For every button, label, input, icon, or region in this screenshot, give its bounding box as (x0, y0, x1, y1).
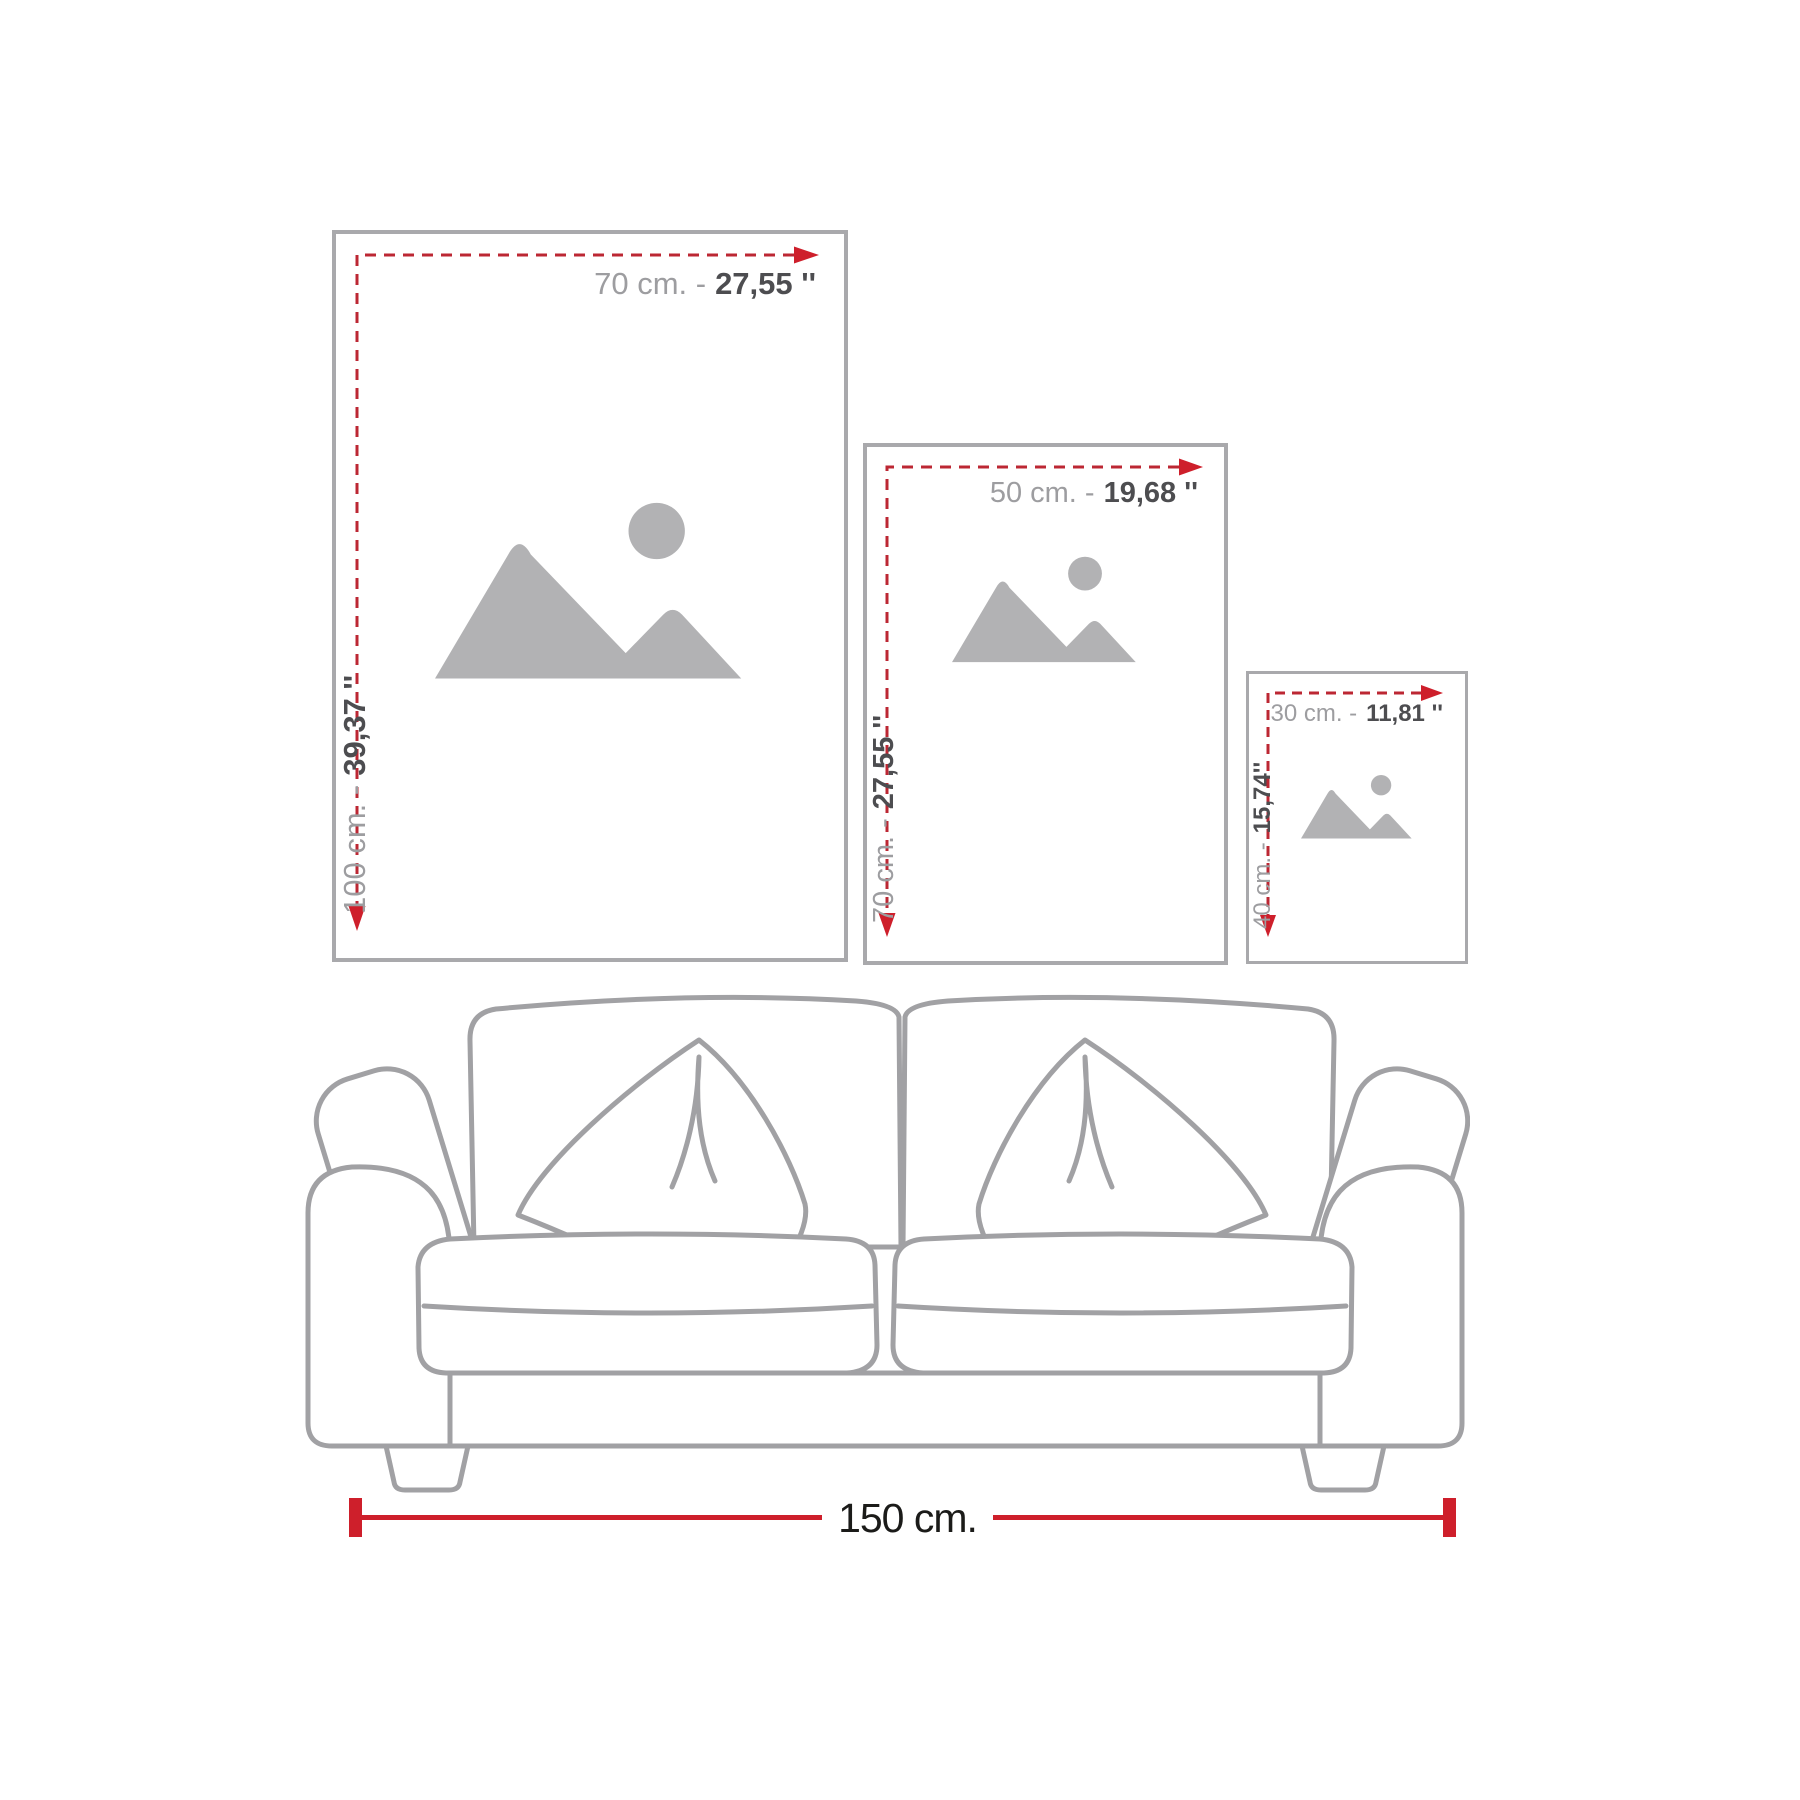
sofa-seat-cushion-right (893, 1234, 1352, 1373)
width-dimension-label: 70 cm. -27,55 '' (594, 268, 816, 299)
poster-frame-small: 30 cm. -11,81 '' 40 cm. -15,74'' (1246, 671, 1468, 964)
height-dimension-label: 100 cm. -39,37 '' (339, 675, 370, 914)
width-inch-value: 11,81 '' (1366, 700, 1443, 727)
width-dimension-label: 30 cm. -11,81 '' (1270, 702, 1443, 726)
sofa-seat-cushion-left (418, 1234, 877, 1373)
height-dimension-label: 40 cm. -15,74'' (1251, 762, 1275, 929)
measure-line-right (993, 1515, 1443, 1520)
image-placeholder-icon (1301, 774, 1413, 840)
poster-frame-large: 70 cm. -27,55 '' 100 cm. -39,37 '' (332, 230, 848, 962)
arrow-right-icon (1421, 685, 1443, 701)
sofa-foot-right (1302, 1446, 1384, 1490)
width-cm-value: 70 cm. - (594, 266, 706, 301)
width-dimension-label: 50 cm. -19,68 '' (990, 479, 1198, 508)
sofa-foot-left (386, 1446, 468, 1490)
width-cm-value: 50 cm. - (990, 477, 1095, 509)
width-inch-value: 19,68 '' (1104, 477, 1198, 509)
height-dimension-label: 70 cm. -27,55 '' (870, 715, 899, 923)
sofa-base (450, 1373, 1320, 1446)
arrow-right-icon (794, 247, 819, 264)
width-cm-value: 30 cm. - (1270, 700, 1357, 727)
poster-frame-medium: 50 cm. -19,68 '' 70 cm. -27,55 '' (863, 443, 1228, 965)
height-cm-value: 100 cm. - (337, 785, 372, 914)
size-guide-diagram: 70 cm. -27,55 '' 100 cm. -39,37 '' 50 cm… (0, 0, 1800, 1800)
dimension-lines-medium (867, 447, 1224, 961)
arrow-right-icon (1179, 459, 1203, 476)
measure-line-left (356, 1515, 822, 1520)
height-inch-value: 39,37 '' (337, 675, 372, 776)
height-inch-value: 15,74'' (1249, 762, 1276, 833)
image-placeholder-icon (435, 500, 745, 683)
measure-endcap-right (1443, 1498, 1456, 1537)
image-placeholder-icon (952, 555, 1138, 665)
sofa-illustration (300, 985, 1470, 1495)
height-cm-value: 40 cm. - (1249, 842, 1276, 929)
height-cm-value: 70 cm. - (868, 818, 900, 923)
sofa-width-label: 150 cm. (822, 1494, 993, 1542)
height-inch-value: 27,55 '' (868, 715, 900, 809)
width-inch-value: 27,55 '' (715, 266, 816, 301)
